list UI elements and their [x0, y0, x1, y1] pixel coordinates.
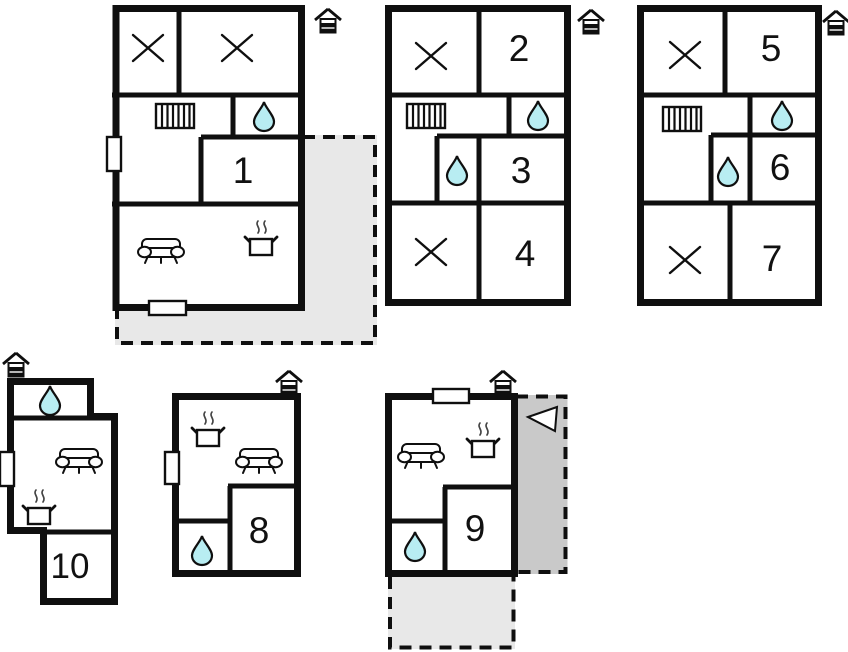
window-icon: [165, 452, 179, 484]
room-label-10: 10: [51, 547, 90, 586]
room-label-1: 1: [233, 150, 254, 191]
door-icon: [149, 301, 186, 315]
room-label-7: 7: [762, 238, 783, 279]
terrace-building-9-bottom: [388, 577, 515, 649]
room-label-3: 3: [511, 150, 532, 191]
room-label-2: 2: [509, 28, 530, 69]
terrace-building-9-side: [515, 395, 568, 574]
north-house-icon: [823, 11, 848, 35]
room-label-6: 6: [770, 147, 791, 188]
room-label-9: 9: [465, 508, 486, 549]
building-unit-3: 5 6 7: [637, 5, 848, 303]
building-unit-9: 9: [389, 371, 517, 574]
radiator-icon: [663, 107, 701, 131]
north-house-icon: [276, 371, 302, 395]
building-unit-2: 2 3 4: [385, 5, 604, 303]
radiator-icon: [407, 104, 445, 128]
north-house-icon: [490, 371, 516, 395]
floor-plan-canvas: 1 2 3 4 5 6 7 10: [0, 0, 848, 652]
terrace-9-bottom-area: [388, 577, 515, 649]
north-house-icon: [578, 10, 604, 34]
building-unit-10: 10: [0, 353, 115, 602]
room-label-4: 4: [515, 233, 536, 274]
window-icon: [0, 452, 14, 486]
room-label-8: 8: [249, 510, 270, 551]
building-unit-8: 8: [165, 371, 302, 574]
north-house-icon: [315, 9, 341, 33]
window-icon: [107, 137, 121, 171]
room-label-5: 5: [761, 28, 782, 69]
radiator-icon: [156, 104, 194, 128]
building-1-outline: [116, 9, 302, 308]
floor-plan-page: 1 2 3 4 5 6 7 10: [0, 0, 848, 652]
north-house-icon: [3, 353, 29, 377]
door-icon: [433, 389, 469, 403]
